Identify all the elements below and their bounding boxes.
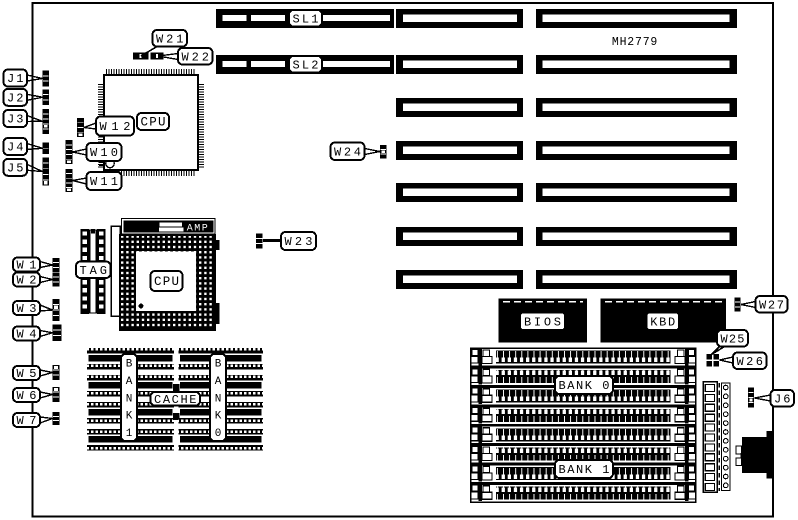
svg-text:W12: W12 <box>100 120 131 134</box>
svg-text:N: N <box>126 393 133 405</box>
svg-text:W24: W24 <box>334 145 361 159</box>
svg-text:0: 0 <box>215 428 222 440</box>
svg-text:SL1: SL1 <box>293 12 319 26</box>
svg-text:W26: W26 <box>737 355 764 369</box>
svg-text:N: N <box>215 393 222 405</box>
svg-text:W11: W11 <box>90 175 118 189</box>
svg-text:K: K <box>126 411 133 423</box>
svg-text:AMP: AMP <box>187 224 210 235</box>
svg-text:A: A <box>215 376 222 388</box>
svg-text:W10: W10 <box>90 146 118 160</box>
svg-text:W23: W23 <box>285 235 313 249</box>
svg-text:TAG: TAG <box>80 264 108 278</box>
svg-text:B: B <box>126 359 133 371</box>
svg-text:W25: W25 <box>721 332 745 346</box>
svg-text:KBD: KBD <box>650 315 675 329</box>
svg-text:W21: W21 <box>156 32 184 46</box>
svg-text:A: A <box>126 376 133 388</box>
svg-text:CPU: CPU <box>154 275 179 289</box>
svg-text:SL2: SL2 <box>293 58 319 72</box>
svg-text:K: K <box>215 411 222 423</box>
svg-text:W27: W27 <box>759 298 784 312</box>
svg-text:MH2779: MH2779 <box>612 36 658 49</box>
svg-text:B: B <box>215 359 222 371</box>
svg-text:W22: W22 <box>182 50 210 64</box>
svg-text:CACHE: CACHE <box>154 393 197 407</box>
svg-text:1: 1 <box>126 428 133 440</box>
svg-text:CPU: CPU <box>141 116 166 130</box>
